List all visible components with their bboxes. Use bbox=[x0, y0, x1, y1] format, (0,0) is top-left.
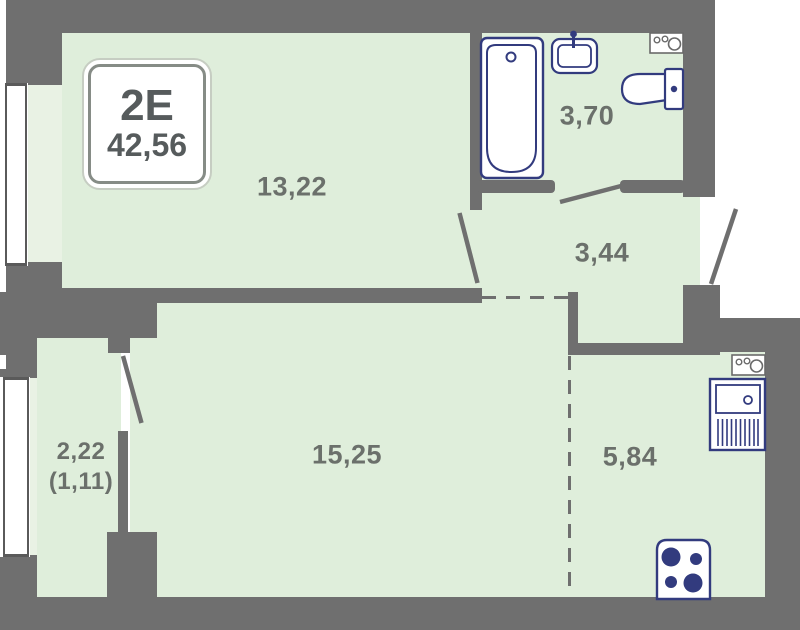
wall-balcony-top bbox=[0, 303, 157, 338]
hallway-area-label: 3,44 bbox=[575, 238, 630, 269]
wall-hallway-stub bbox=[568, 292, 578, 350]
wall-bathroom-bottom-left bbox=[478, 180, 555, 193]
wall-right-upper bbox=[683, 33, 715, 197]
balcony-window-sill bbox=[30, 378, 37, 555]
floor-plan: 2Е 42,56 13,22 3,70 3,44 15,25 5,84 2,22… bbox=[0, 0, 800, 630]
balcony-area-label: 2,22 (1,11) bbox=[49, 437, 113, 497]
room-area-label: 13,22 bbox=[257, 172, 327, 203]
balcony-area-line2: (1,11) bbox=[49, 467, 113, 497]
unit-type-label: 2Е bbox=[120, 84, 174, 128]
window-icon bbox=[0, 83, 28, 266]
wall-kitchen-top-right bbox=[718, 318, 800, 352]
wall-top bbox=[6, 0, 715, 33]
wall-balcony-corner-block bbox=[107, 532, 157, 597]
bathroom-area-label: 3,70 bbox=[560, 101, 615, 132]
wall-bottom bbox=[0, 597, 800, 630]
wall-bathroom-bottom-right bbox=[620, 180, 685, 193]
door-swing-icon bbox=[711, 209, 736, 284]
room-door-opening bbox=[470, 210, 482, 288]
wall-balcony-stub bbox=[118, 431, 128, 532]
balcony-area-line1: 2,22 bbox=[49, 437, 113, 467]
facade-notch-balcony bbox=[0, 355, 6, 369]
kitchen-area bbox=[568, 352, 765, 597]
wall-kitchen-right bbox=[765, 352, 800, 597]
wall-hallway-kitchen bbox=[568, 343, 695, 355]
kitchen-area-label: 5,84 bbox=[603, 442, 658, 473]
wall-balcony-door-jamb bbox=[108, 338, 130, 353]
unit-area-label: 42,56 bbox=[107, 128, 187, 163]
wall-room-bottom bbox=[0, 288, 482, 303]
unit-badge: 2Е 42,56 bbox=[82, 58, 212, 190]
window-niche bbox=[28, 85, 62, 262]
living-room-area-label: 15,25 bbox=[312, 440, 382, 471]
window-icon bbox=[0, 377, 30, 557]
